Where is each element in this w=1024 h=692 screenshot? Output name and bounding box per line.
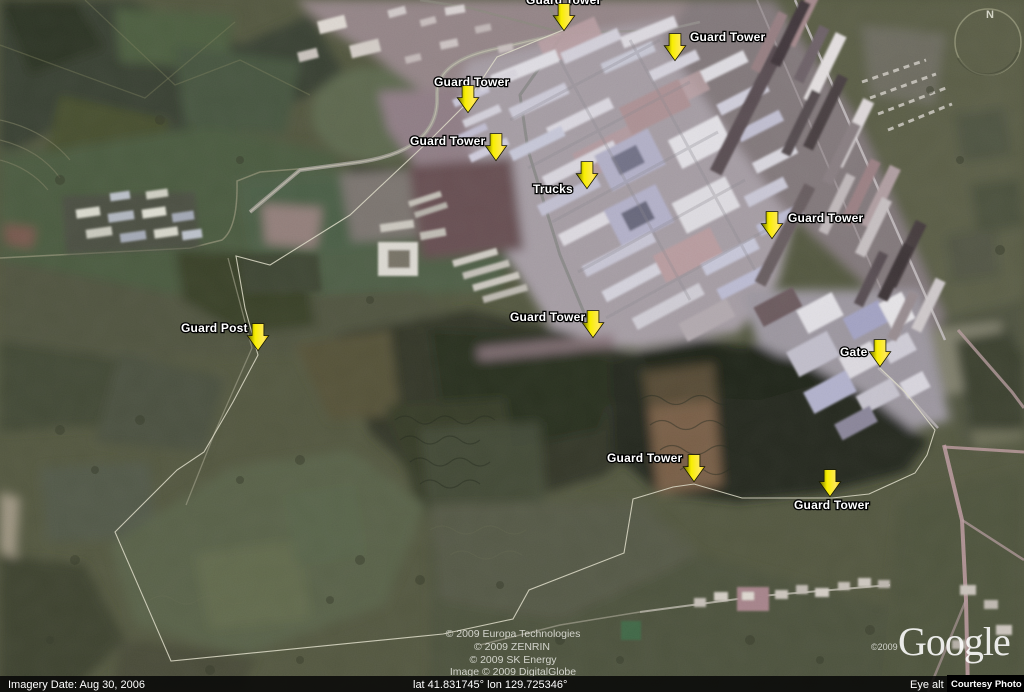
svg-text:© 2009 ZENRIN: © 2009 ZENRIN xyxy=(474,641,550,653)
svg-text:Guard Tower: Guard Tower xyxy=(794,498,869,512)
svg-text:© 2009 SK Energy: © 2009 SK Energy xyxy=(469,654,557,666)
svg-text:© 2009 Europa Technologies: © 2009 Europa Technologies xyxy=(446,628,581,640)
svg-text:Guard Tower: Guard Tower xyxy=(510,310,585,324)
svg-text:Guard Tower: Guard Tower xyxy=(690,30,765,44)
svg-text:Trucks: Trucks xyxy=(533,182,573,196)
svg-text:Guard Tower: Guard Tower xyxy=(788,211,863,225)
svg-text:Guard Tower: Guard Tower xyxy=(607,451,682,465)
svg-text:lat 41.831745° lon 129.: lat 41.831745° lon 129.725346° xyxy=(413,679,567,691)
svg-text:Google: Google xyxy=(898,619,1010,664)
svg-text:©2009: ©2009 xyxy=(871,642,898,652)
svg-text:Guard Post: Guard Post xyxy=(181,321,248,335)
svg-text:Eye alt: Eye alt xyxy=(910,679,944,691)
svg-text:Courtesy Photo: Courtesy Photo xyxy=(951,679,1022,690)
svg-text:Imagery Date: Aug 30, 2006: Imagery Date: Aug 30, 2006 xyxy=(8,679,145,691)
svg-text:N: N xyxy=(986,9,994,21)
svg-text:Guard Tower: Guard Tower xyxy=(410,134,485,148)
svg-text:Gate: Gate xyxy=(840,345,868,359)
